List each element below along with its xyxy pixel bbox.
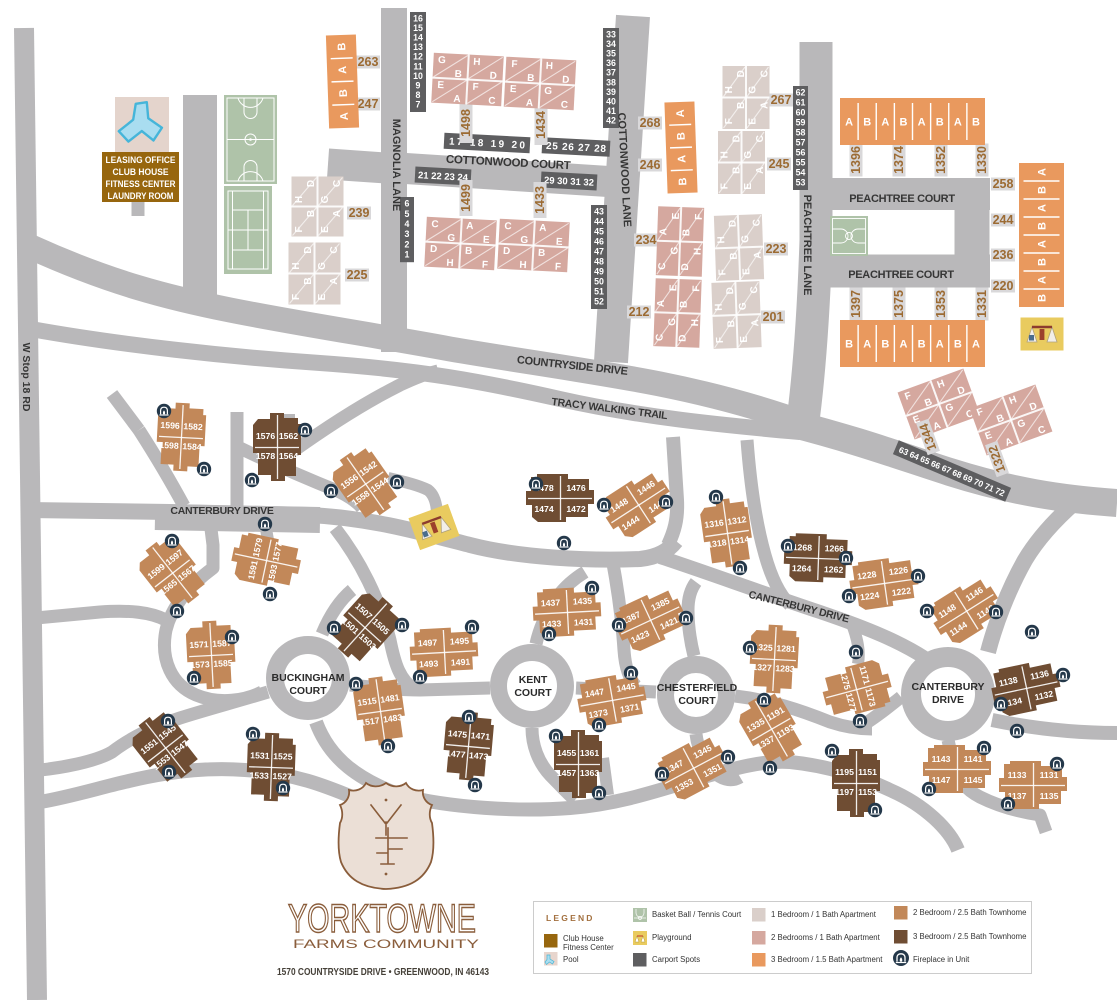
svg-text:A: A — [656, 300, 667, 308]
svg-text:3 Bedroom / 1.5 Bath Apartment: 3 Bedroom / 1.5 Bath Apartment — [771, 955, 883, 964]
svg-text:G: G — [670, 246, 681, 254]
svg-text:A: A — [845, 117, 853, 129]
svg-text:220: 220 — [993, 279, 1014, 293]
svg-text:A: A — [339, 112, 351, 120]
svg-text:A: A — [936, 339, 944, 351]
svg-text:201: 201 — [763, 310, 784, 324]
svg-text:B: B — [1037, 258, 1049, 266]
svg-text:E: E — [437, 80, 445, 91]
svg-text:46: 46 — [594, 237, 604, 247]
svg-text:1433: 1433 — [533, 186, 547, 214]
svg-text:1491: 1491 — [451, 657, 471, 668]
svg-text:1353: 1353 — [934, 290, 948, 318]
svg-text:E: E — [483, 235, 491, 246]
svg-text:C: C — [749, 286, 760, 294]
svg-text:FARMS COMMUNITY: FARMS COMMUNITY — [293, 939, 480, 951]
svg-text:49: 49 — [594, 267, 604, 277]
svg-text:B: B — [1037, 294, 1049, 302]
svg-text:1570 COUNTRYSIDE DRIVE • GREEN: 1570 COUNTRYSIDE DRIVE • GREENWOOD, IN 4… — [277, 966, 489, 978]
svg-text:1131: 1131 — [1040, 770, 1059, 780]
svg-text:35: 35 — [606, 49, 616, 59]
svg-text:267: 267 — [771, 93, 792, 107]
svg-text:F: F — [715, 337, 726, 343]
svg-text:B: B — [729, 252, 740, 260]
svg-text:2 Bedrooms / 1 Bath Apartment: 2 Bedrooms / 1 Bath Apartment — [771, 933, 881, 942]
svg-text:1283: 1283 — [775, 663, 795, 674]
svg-text:1437: 1437 — [541, 597, 561, 608]
svg-text:W Stop 18 RD: W Stop 18 RD — [20, 343, 32, 412]
svg-text:239: 239 — [349, 206, 370, 220]
svg-text:1268: 1268 — [793, 542, 813, 553]
svg-text:COURT: COURT — [514, 687, 552, 699]
svg-text:G: G — [747, 86, 758, 94]
svg-text:A: A — [539, 223, 547, 234]
svg-text:225: 225 — [347, 268, 368, 282]
svg-text:A: A — [899, 339, 907, 351]
svg-text:C: C — [504, 221, 512, 232]
svg-text:1431: 1431 — [574, 617, 594, 628]
svg-text:A: A — [526, 98, 534, 109]
svg-text:44: 44 — [594, 217, 604, 227]
svg-text:223: 223 — [766, 242, 787, 256]
svg-text:D: D — [430, 244, 438, 255]
svg-text:PEACHTREE LANE: PEACHTREE LANE — [801, 195, 813, 296]
svg-text:C: C — [755, 135, 766, 142]
svg-text:60: 60 — [796, 108, 806, 118]
svg-text:FITNESS CENTER: FITNESS CENTER — [106, 179, 177, 189]
svg-text:1: 1 — [405, 250, 410, 260]
svg-text:A: A — [755, 167, 766, 174]
svg-text:PEACHTREE COURT: PEACHTREE COURT — [849, 193, 955, 205]
svg-text:B: B — [972, 117, 980, 129]
svg-text:A: A — [918, 117, 926, 129]
svg-text:D: D — [725, 287, 736, 295]
svg-text:A: A — [954, 117, 962, 129]
svg-text:C: C — [560, 100, 568, 111]
svg-text:Playground: Playground — [652, 933, 691, 942]
svg-text:1472: 1472 — [566, 504, 585, 514]
svg-text:B: B — [336, 42, 348, 50]
svg-text:236: 236 — [993, 248, 1014, 262]
svg-text:A: A — [675, 109, 687, 117]
svg-text:C: C — [752, 219, 763, 227]
svg-text:G: G — [740, 235, 751, 243]
svg-text:1498: 1498 — [459, 109, 473, 137]
svg-text:A: A — [332, 210, 343, 217]
svg-text:1582: 1582 — [183, 421, 203, 432]
svg-text:1330: 1330 — [975, 146, 989, 174]
svg-text:12: 12 — [413, 52, 423, 62]
svg-text:H: H — [291, 262, 302, 269]
svg-text:244: 244 — [993, 213, 1014, 227]
svg-text:D: D — [680, 263, 691, 271]
svg-text:1264: 1264 — [792, 563, 812, 574]
svg-text:53: 53 — [796, 178, 806, 188]
svg-text:B: B — [899, 117, 907, 129]
svg-text:CANTERBURY: CANTERBURY — [911, 681, 984, 693]
svg-text:LEGEND: LEGEND — [546, 913, 595, 923]
svg-text:E: E — [671, 212, 682, 219]
svg-text:D: D — [731, 135, 742, 142]
svg-text:34: 34 — [606, 39, 616, 49]
svg-text:F: F — [294, 226, 305, 232]
svg-text:1564: 1564 — [279, 451, 298, 461]
svg-text:1584: 1584 — [182, 441, 202, 452]
svg-text:1525: 1525 — [273, 751, 293, 762]
svg-text:D: D — [728, 220, 739, 228]
svg-text:CLUB HOUSE: CLUB HOUSE — [113, 167, 169, 177]
svg-text:B: B — [303, 277, 314, 284]
svg-text:1331: 1331 — [975, 290, 989, 318]
svg-text:Fitness Center: Fitness Center — [563, 943, 614, 952]
svg-text:MAGNOLIA LANE: MAGNOLIA LANE — [390, 119, 402, 211]
svg-text:1585: 1585 — [213, 658, 233, 669]
svg-text:1197: 1197 — [835, 787, 854, 797]
svg-text:14: 14 — [413, 33, 423, 43]
svg-text:1571: 1571 — [189, 639, 209, 650]
svg-text:7: 7 — [416, 100, 421, 110]
svg-text:COURT: COURT — [678, 695, 716, 707]
svg-text:A: A — [658, 228, 669, 236]
svg-text:B: B — [731, 167, 742, 174]
svg-text:D: D — [306, 180, 317, 187]
svg-text:F: F — [717, 269, 728, 275]
svg-text:10: 10 — [413, 71, 423, 81]
svg-text:H: H — [693, 248, 704, 256]
svg-text:263: 263 — [358, 55, 379, 69]
svg-text:A: A — [753, 251, 764, 259]
svg-text:5: 5 — [405, 209, 410, 219]
svg-text:C: C — [488, 96, 496, 107]
svg-text:B: B — [918, 339, 926, 351]
svg-text:A: A — [1037, 204, 1049, 212]
svg-text:E: E — [668, 284, 679, 291]
svg-text:A: A — [759, 102, 770, 109]
svg-text:A: A — [750, 319, 761, 327]
svg-text:E: E — [510, 84, 518, 95]
svg-text:212: 212 — [629, 305, 650, 319]
svg-text:1596: 1596 — [160, 420, 180, 431]
svg-text:G: G — [320, 195, 331, 203]
svg-text:15: 15 — [413, 23, 423, 33]
svg-text:1527: 1527 — [272, 771, 292, 782]
svg-text:F: F — [482, 260, 489, 271]
svg-text:11: 11 — [413, 61, 422, 71]
svg-text:1151: 1151 — [858, 767, 877, 777]
svg-text:B: B — [675, 132, 687, 140]
svg-text:1145: 1145 — [964, 775, 983, 785]
svg-text:43: 43 — [594, 207, 604, 217]
svg-text:1455: 1455 — [557, 748, 576, 758]
svg-text:E: E — [556, 237, 564, 248]
svg-text:1352: 1352 — [934, 146, 948, 174]
svg-text:16: 16 — [413, 13, 423, 23]
svg-text:Carport Spots: Carport Spots — [652, 955, 700, 964]
svg-text:Pool: Pool — [563, 955, 579, 964]
svg-text:CANTERBURY DRIVE: CANTERBURY DRIVE — [170, 505, 273, 517]
svg-text:50: 50 — [594, 277, 604, 287]
svg-text:1474: 1474 — [534, 504, 553, 514]
svg-text:51: 51 — [594, 287, 604, 297]
svg-text:B: B — [465, 246, 473, 257]
svg-text:1396: 1396 — [849, 146, 863, 174]
svg-text:B: B — [881, 339, 889, 351]
svg-text:C: C — [329, 246, 340, 253]
svg-text:B: B — [936, 117, 944, 129]
svg-text:A: A — [1037, 240, 1049, 248]
svg-text:G: G — [738, 302, 749, 310]
svg-text:Fireplace in Unit: Fireplace in Unit — [913, 955, 970, 964]
svg-text:B: B — [677, 177, 689, 185]
svg-text:45: 45 — [594, 227, 604, 237]
svg-text:B: B — [681, 229, 692, 237]
svg-text:B: B — [527, 73, 535, 84]
svg-text:52: 52 — [594, 297, 604, 307]
svg-text:E: E — [739, 335, 750, 342]
svg-text:1195: 1195 — [835, 767, 854, 777]
svg-text:B: B — [306, 210, 317, 217]
svg-text:H: H — [473, 57, 481, 68]
svg-text:1471: 1471 — [470, 730, 490, 742]
svg-text:1143: 1143 — [932, 754, 951, 764]
svg-text:1497: 1497 — [418, 637, 438, 648]
svg-text:247: 247 — [358, 97, 379, 111]
svg-text:Club House: Club House — [563, 934, 604, 943]
svg-text:1147: 1147 — [932, 775, 951, 785]
svg-text:1457: 1457 — [557, 768, 576, 778]
svg-text:F: F — [694, 214, 705, 220]
svg-text:1 Bedroom / 1 Bath Apartment: 1 Bedroom / 1 Bath Apartment — [771, 910, 877, 919]
svg-text:57: 57 — [796, 138, 806, 148]
svg-text:A: A — [676, 155, 688, 163]
svg-text:D: D — [303, 246, 314, 253]
svg-text:2 Bedroom / 2.5 Bath Townhome: 2 Bedroom / 2.5 Bath Townhome — [913, 908, 1026, 917]
svg-text:246: 246 — [640, 158, 661, 172]
svg-text:F: F — [719, 183, 730, 189]
svg-text:1576: 1576 — [256, 431, 275, 441]
svg-text:61: 61 — [796, 98, 806, 108]
svg-text:48: 48 — [594, 257, 604, 267]
svg-text:2: 2 — [405, 239, 410, 249]
svg-text:1434: 1434 — [534, 111, 548, 139]
svg-text:LEASING OFFICE: LEASING OFFICE — [106, 155, 176, 165]
svg-text:B: B — [736, 102, 747, 109]
svg-text:Basket Ball / Tennis Court: Basket Ball / Tennis Court — [652, 910, 742, 919]
svg-text:D: D — [503, 246, 511, 257]
svg-text:268: 268 — [640, 116, 661, 130]
svg-text:H: H — [446, 258, 454, 269]
svg-text:H: H — [294, 196, 305, 203]
svg-text:1133: 1133 — [1008, 770, 1027, 780]
svg-text:1361: 1361 — [580, 748, 599, 758]
svg-text:1499: 1499 — [459, 184, 473, 212]
svg-text:E: E — [317, 293, 328, 300]
svg-text:3: 3 — [405, 229, 410, 239]
svg-text:D: D — [489, 71, 497, 82]
svg-text:G: G — [447, 233, 456, 244]
svg-text:E: E — [320, 226, 331, 233]
svg-text:B: B — [679, 300, 690, 308]
svg-text:C: C — [431, 219, 439, 230]
svg-text:F: F — [724, 118, 735, 124]
svg-text:D: D — [678, 334, 689, 342]
svg-text:1435: 1435 — [573, 596, 593, 607]
svg-text:38: 38 — [606, 77, 616, 87]
svg-text:9: 9 — [416, 81, 421, 91]
svg-text:B: B — [726, 320, 737, 328]
svg-text:37: 37 — [606, 68, 616, 78]
svg-text:1266: 1266 — [825, 543, 845, 554]
svg-text:40: 40 — [606, 97, 616, 107]
svg-text:F: F — [472, 82, 479, 93]
svg-text:1562: 1562 — [279, 431, 298, 441]
svg-text:B: B — [338, 89, 350, 97]
svg-text:A: A — [1037, 276, 1049, 284]
svg-text:33: 33 — [606, 29, 616, 39]
svg-text:A: A — [453, 94, 461, 105]
svg-text:245: 245 — [769, 157, 790, 171]
svg-text:D: D — [562, 75, 570, 86]
svg-text:B: B — [538, 248, 546, 259]
svg-text:C: C — [657, 262, 668, 270]
svg-text:H: H — [724, 86, 735, 93]
svg-text:G: G — [520, 235, 529, 246]
svg-text:A: A — [972, 339, 980, 351]
svg-text:1531: 1531 — [250, 750, 270, 761]
svg-text:B: B — [454, 69, 462, 80]
svg-text:E: E — [743, 183, 754, 190]
svg-text:4: 4 — [405, 219, 410, 229]
svg-text:1477: 1477 — [446, 748, 466, 760]
svg-text:1375: 1375 — [892, 290, 906, 318]
svg-text:1141: 1141 — [964, 754, 983, 764]
svg-text:B: B — [863, 117, 871, 129]
svg-text:G: G — [544, 86, 553, 97]
svg-text:F: F — [511, 59, 518, 70]
svg-text:1493: 1493 — [419, 658, 439, 669]
svg-text:1578: 1578 — [256, 451, 275, 461]
svg-text:D: D — [736, 70, 747, 77]
svg-text:C: C — [655, 334, 666, 342]
svg-text:8: 8 — [416, 90, 421, 100]
svg-text:E: E — [747, 118, 758, 125]
svg-text:A: A — [466, 221, 474, 232]
svg-text:1573: 1573 — [190, 659, 210, 670]
svg-text:F: F — [291, 294, 302, 300]
svg-text:B: B — [1037, 186, 1049, 194]
svg-text:41: 41 — [606, 106, 616, 116]
svg-text:A: A — [329, 277, 340, 284]
svg-text:G: G — [438, 55, 447, 66]
svg-text:H: H — [690, 319, 701, 327]
svg-text:H: H — [546, 61, 554, 72]
svg-text:1397: 1397 — [849, 290, 863, 318]
svg-text:F: F — [691, 285, 702, 291]
svg-text:59: 59 — [796, 118, 806, 128]
svg-text:KENT: KENT — [519, 674, 548, 686]
svg-text:B: B — [1037, 222, 1049, 230]
svg-text:258: 258 — [993, 177, 1014, 191]
svg-text:3 Bedroom / 2.5 Bath Townhome: 3 Bedroom / 2.5 Bath Townhome — [913, 932, 1026, 941]
svg-text:C: C — [759, 70, 770, 77]
svg-text:G: G — [317, 262, 328, 270]
svg-text:B: B — [954, 339, 962, 351]
svg-text:YORKTOWNE: YORKTOWNE — [288, 897, 476, 941]
svg-text:H: H — [714, 303, 725, 311]
svg-text:G: G — [743, 151, 754, 159]
svg-text:13: 13 — [413, 42, 423, 52]
svg-text:H: H — [716, 236, 727, 244]
svg-text:234: 234 — [636, 233, 657, 247]
svg-text:47: 47 — [594, 247, 604, 257]
svg-text:1476: 1476 — [566, 483, 585, 493]
svg-text:H: H — [519, 260, 527, 271]
svg-text:B: B — [845, 339, 853, 351]
svg-text:62: 62 — [796, 88, 806, 98]
svg-text:PEACHTREE COURT: PEACHTREE COURT — [848, 269, 954, 281]
svg-text:H: H — [719, 151, 730, 158]
svg-text:1473: 1473 — [469, 750, 489, 762]
svg-text:F: F — [555, 262, 562, 273]
svg-text:A: A — [863, 339, 871, 351]
svg-text:A: A — [1037, 168, 1049, 176]
svg-text:1153: 1153 — [858, 787, 877, 797]
svg-text:E: E — [741, 268, 752, 275]
svg-text:6: 6 — [405, 199, 410, 209]
svg-text:42: 42 — [606, 116, 616, 126]
svg-text:1475: 1475 — [447, 728, 467, 740]
svg-text:36: 36 — [606, 58, 616, 68]
svg-text:1533: 1533 — [249, 770, 269, 781]
svg-text:DRIVE: DRIVE — [932, 694, 964, 706]
svg-text:LAUNDRY ROOM: LAUNDRY ROOM — [108, 191, 174, 201]
svg-text:1327: 1327 — [752, 662, 772, 673]
svg-text:1598: 1598 — [159, 440, 179, 451]
svg-text:58: 58 — [796, 128, 806, 138]
svg-text:1281: 1281 — [776, 643, 796, 654]
svg-text:BUCKINGHAM: BUCKINGHAM — [272, 672, 345, 684]
svg-text:1363: 1363 — [580, 768, 599, 778]
svg-text:1262: 1262 — [824, 564, 844, 575]
svg-text:A: A — [337, 66, 349, 74]
svg-text:G: G — [667, 318, 678, 326]
svg-text:1135: 1135 — [1040, 791, 1059, 801]
svg-text:56: 56 — [796, 148, 806, 158]
svg-text:54: 54 — [796, 168, 806, 178]
svg-text:55: 55 — [796, 158, 806, 168]
svg-text:1495: 1495 — [450, 636, 470, 647]
svg-text:COURT: COURT — [289, 685, 327, 697]
svg-text:1374: 1374 — [892, 146, 906, 174]
svg-text:CHESTERFIELD: CHESTERFIELD — [657, 682, 738, 694]
svg-text:A: A — [881, 117, 889, 129]
svg-text:39: 39 — [606, 87, 616, 97]
svg-text:C: C — [332, 180, 343, 187]
